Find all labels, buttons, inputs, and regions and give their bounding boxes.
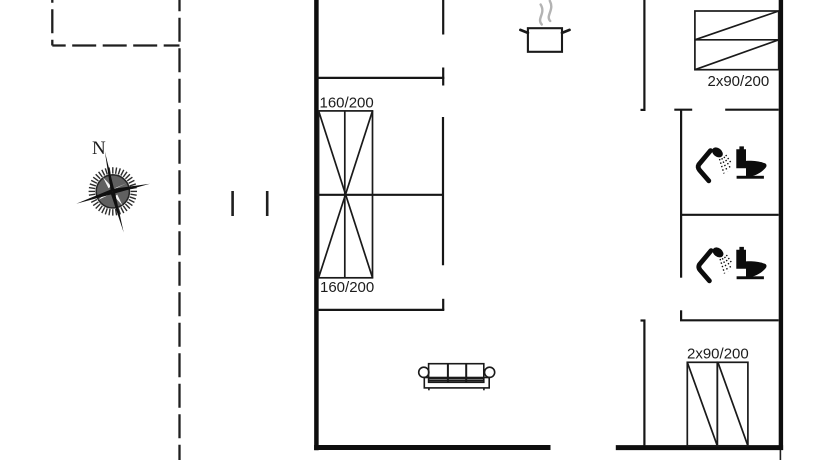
svg-text:160/200: 160/200 xyxy=(320,279,374,296)
svg-text:2x90/200: 2x90/200 xyxy=(708,73,770,90)
svg-text:N: N xyxy=(92,138,106,159)
svg-text:160/200: 160/200 xyxy=(320,94,374,111)
svg-text:2x90/200: 2x90/200 xyxy=(687,345,749,362)
